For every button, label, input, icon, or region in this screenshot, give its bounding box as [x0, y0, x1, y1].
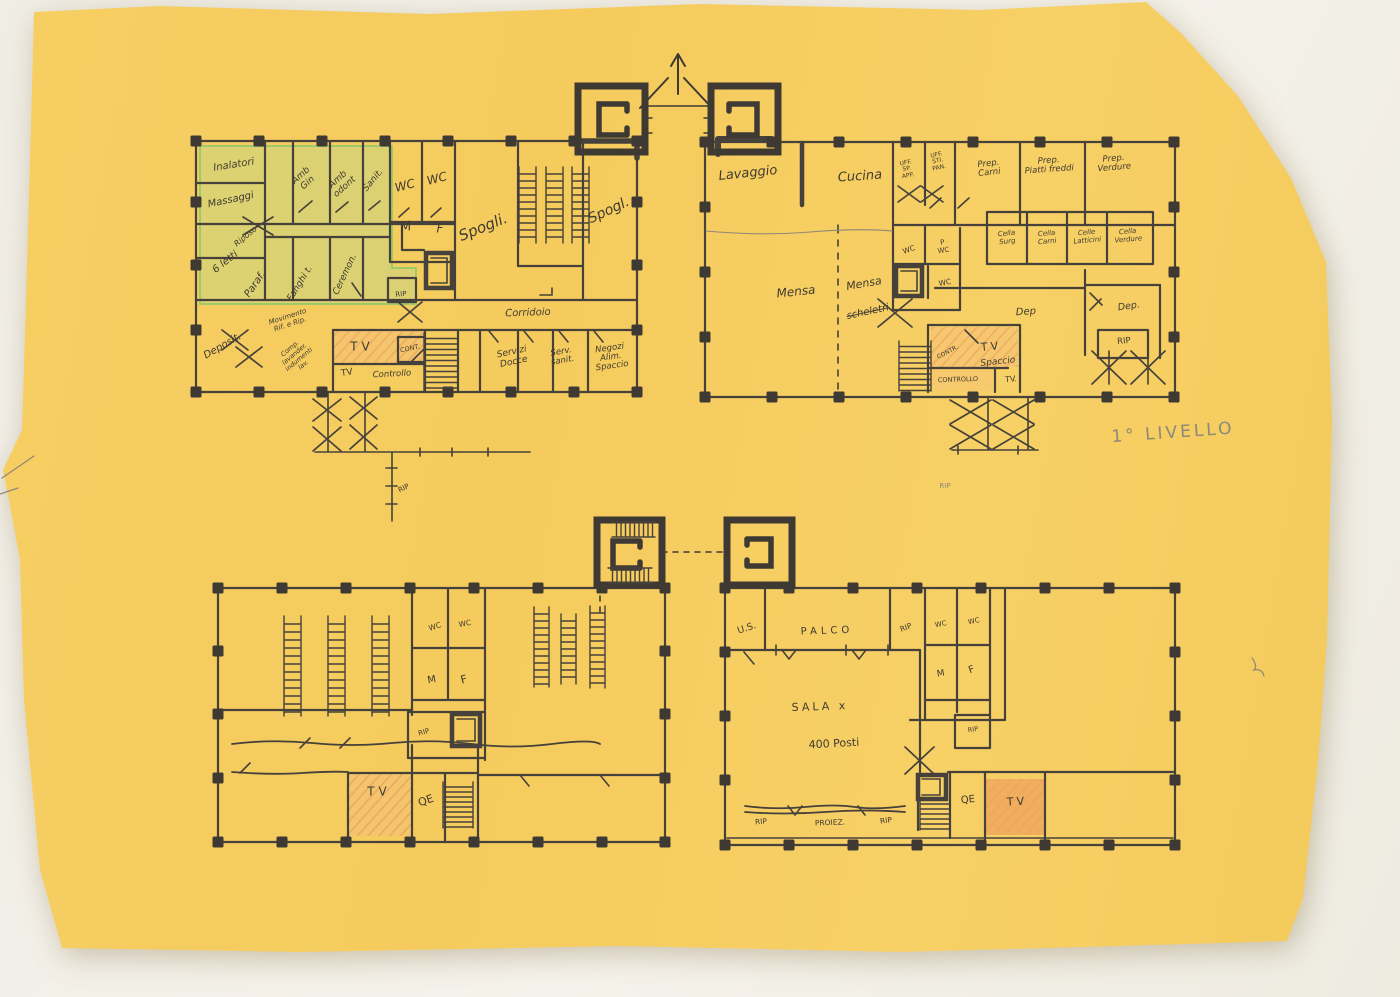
room-tv-a2: TV [341, 368, 354, 379]
room-servizi-docce: Servizi Docce [496, 345, 529, 370]
room-tv-c: TV [367, 786, 391, 799]
room-riposo: Riposo [233, 225, 259, 249]
room-rip-d2: RIP [967, 726, 978, 734]
room-prep-piatti-freddi: Prep. Piatti freddi [1024, 155, 1074, 177]
room-tv-b2: TV. [1005, 375, 1018, 385]
room-corridoio: Corridoio [505, 308, 551, 320]
room-wc-c1: WC [428, 621, 443, 633]
room-wc-a2: WC [426, 170, 449, 188]
room-controllo-b: CONTROLLO [938, 376, 978, 384]
room-rip-d1: RIP [899, 622, 913, 634]
room-rip-d3: RIP [755, 817, 768, 826]
room-ceremon: Ceremon. [332, 253, 359, 297]
room-wc-a1: WC [394, 177, 417, 195]
room-inalatori: Inalatori [213, 157, 255, 174]
room-f-c: F [459, 673, 468, 686]
room-tv-b: TV [980, 340, 1001, 354]
room-negozi: Negozi Alim. Spaccio [593, 342, 629, 374]
note-rip-below-a: RIP [397, 483, 410, 495]
room-cella-carni: Cella Carni [1037, 230, 1057, 247]
room-prep-verdure: Prep. Verdure [1096, 153, 1131, 174]
room-wc-b2: WC [938, 278, 952, 288]
room-cella-surg: Cella Surg [998, 230, 1017, 247]
room-sanit: Sanit. [362, 168, 386, 194]
room-celle-latticini: Celle Latticini [1072, 228, 1101, 245]
room-massaggi: Massaggi [207, 191, 255, 211]
room-wc-d2: WC [967, 617, 980, 627]
sketch-canvas: InalatoriMassaggiAmb GinAmb odontSanit.W… [0, 0, 1400, 997]
room-cella-verdure: Cella Verdure [1114, 227, 1143, 244]
room-serv-sanit: Serv. sanit. [549, 346, 575, 368]
note-movimento: Movimento Rif. e Rip. [268, 308, 310, 334]
room-uff-sti-pan: UFF. STI. PAN. [929, 151, 946, 173]
room-us-d: U.S. [736, 621, 757, 637]
room-rip-d4: RIP [880, 816, 893, 826]
room-lavaggio: Lavaggio [718, 164, 778, 184]
room-tv-d: TV [1007, 796, 1028, 809]
room-m-d: M [936, 670, 945, 681]
room-m-c: M [427, 675, 437, 687]
room-rip-c: RIP [418, 728, 431, 738]
room-fanghi: Fanghi t. [286, 265, 315, 304]
room-wc-c2: WC [458, 619, 472, 629]
room-controllo-a: Controllo [373, 369, 412, 380]
room-uff-sp-app: UFF. SP. APP. [899, 159, 915, 180]
room-spogli-2: Spogl. [586, 195, 632, 227]
room-dep-b1: Dep [1016, 307, 1037, 319]
room-palco: PALCO [800, 626, 853, 639]
room-rip-b: RIP [1117, 337, 1131, 347]
room-cont-a: CONT. [400, 344, 421, 355]
room-amb-gin: Amb Gin [291, 166, 319, 194]
room-f-a: F [437, 223, 444, 236]
room-p-wc-b: P WC [936, 239, 950, 256]
note-rip-stray-b: RIP [939, 483, 950, 491]
room-sala: SALA x [791, 700, 848, 714]
room-spaccio-b: Spaccio [980, 356, 1016, 369]
labels-layer: InalatoriMassaggiAmb GinAmb odontSanit.W… [0, 0, 1400, 997]
room-qe-c: QE [417, 793, 436, 809]
room-contr-b: CONTR. [936, 345, 959, 361]
note-comp-lavander: Comp. lavander. indumenti lav. [275, 336, 318, 379]
room-deposit: Deposit. [202, 332, 243, 362]
note-scheletri: scheletri [846, 303, 890, 322]
room-qe-d: QE [960, 795, 975, 807]
room-proiez: PROIEZ. [815, 818, 845, 827]
room-prep-carni: Prep. Carni [977, 159, 1001, 180]
room-paraf: Paraf. [243, 270, 268, 300]
room-6-letti: 6 letti [211, 250, 241, 276]
level-title: 1° LIVELLO [1111, 420, 1235, 447]
room-wc-d1: WC [934, 620, 947, 630]
room-mensa-1: Mensa [776, 284, 816, 301]
room-spogli-1: Spogli. [456, 210, 509, 244]
room-m-a: M [399, 220, 412, 236]
room-cucina: Cucina [837, 168, 882, 185]
room-amb-odont: Amb odont [326, 168, 358, 200]
room-dep-b2: Dep. [1117, 300, 1140, 313]
room-sala-posti: 400 Posti [808, 737, 859, 752]
room-wc-b1: WC [902, 244, 917, 256]
room-f-d: F [967, 665, 976, 677]
room-mensa-2: Mensa [845, 275, 882, 293]
room-tv-a: TV [350, 341, 374, 354]
room-rip-a: RIP [395, 291, 407, 299]
